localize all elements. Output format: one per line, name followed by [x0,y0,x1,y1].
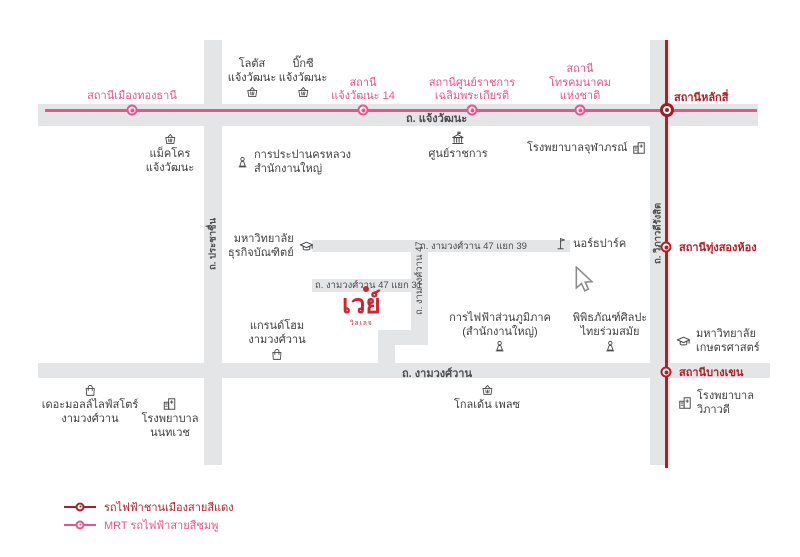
legend-label-red-line: รถไฟฟ้าชานเมืองสายสีแดง [104,498,234,516]
place-label-line: โรงพยาบาล [697,389,754,403]
place-chulabhorn-hospital: โรงพยาบาลจุฬาภรณ์ [527,141,646,155]
place-label-line: นนทเวช [142,426,199,440]
logo-dot [363,286,369,292]
station-label-line: สถานีเมืองทองธานี [87,90,177,103]
place-mwa: การประปานครหลวงสำนักงานใหญ่ [236,148,351,176]
legend-item-pink-line: MRT รถไฟฟ้าสายสีชมพู [64,518,234,531]
place-label: เดอะมอลล์ไลฟ์สโตร์งามวงศ์วาน [42,398,139,426]
place-makro: แม็คโครแจ้งวัฒนะ [146,133,194,175]
station-label-line: แห่งชาติ [549,90,611,103]
place-golden-place: โกลเด้น เพลซ [454,384,520,412]
hospital-icon [678,396,692,410]
station-label-line: สถานี [549,63,611,76]
road-ngamwongwan47-jog-v [378,344,395,365]
landmark-icon [493,340,506,353]
place-label-line: แจ้งวัฒนะ [146,161,194,175]
place-label-line: แกรนด์โฮม [248,319,305,333]
project-logo-text: เวย์ [342,289,381,319]
place-nonthavej-hospital: โรงพยาบาลนนทเวช [142,397,199,440]
place-label-line: สำนักงานใหญ่ [254,162,351,176]
place-label-line: เกษตรศาสตร์ [696,341,760,355]
place-kasetsart: มหาวิทยาลัยเกษตรศาสตร์ [676,327,760,355]
shopping-basket-icon [480,384,493,397]
station-label-telecom-national: สถานีโทรคมนาคมแห่งชาติ [549,63,611,103]
station-label-line: โทรคมนาคม [549,77,611,90]
road-label-ngamwongwan47-yaek39: ถ. งามวงศ์วาน 47 แยก 39 [420,241,527,252]
place-label: การไฟฟ้าส่วนภูมิภาค(สำนักงานใหญ่) [449,311,551,339]
shopping-basket-icon [163,133,176,146]
station-dot-muang-thong-thani [127,105,138,116]
station-dot-lak-si [660,103,674,117]
place-label: การประปานครหลวงสำนักงานใหญ่ [254,148,351,176]
legend-line-swatch-pink-line [64,524,96,526]
shopping-bag-icon [270,348,283,361]
road-label-prachachuen: ถ. ประชาชื่น [204,213,222,275]
place-label: มหาวิทยาลัยธุรกิจบัณฑิตย์ [228,232,294,260]
place-label-line: (สำนักงานใหญ่) [449,325,551,339]
station-dot-bang-khen [661,367,672,378]
flag-icon [554,237,568,251]
place-label-line: มหาวิทยาลัย [228,232,294,246]
legend-station-dot [76,502,85,511]
shopping-basket-icon [245,86,258,99]
station-label-line: แจ้งวัฒนะ 14 [331,90,395,103]
place-label-line: พิพิธภัณฑ์ศิลปะ [573,311,647,325]
place-label: โกลเด้น เพลซ [454,398,520,412]
legend-label-pink-line: MRT รถไฟฟ้าสายสีชมพู [104,516,218,534]
place-label-line: การไฟฟ้าส่วนภูมิภาค [449,311,551,325]
place-label-line: มหาวิทยาลัย [696,327,760,341]
place-label-line: แจ้งวัฒนะ [228,71,276,85]
place-the-mall: เดอะมอลล์ไลฟ์สโตร์งามวงศ์วาน [42,384,139,426]
station-dot-thung-song-hong [661,242,672,253]
landmark-icon [603,340,616,353]
place-label-line: เดอะมอลล์ไลฟ์สโตร์ [42,398,139,412]
road-ngamwongwan47-jog-h [378,330,428,345]
shopping-basket-icon [296,86,309,99]
station-label-government-complex: สถานีศูนย์ราชการเฉลิมพระเกียรติ [429,77,515,103]
place-label: โลตัสแจ้งวัฒนะ [228,57,276,85]
station-label-line: สถานี [331,77,395,90]
place-label: นอร์ธปาร์ค [573,237,626,251]
station-dot-chaengwattana-14 [358,105,369,116]
place-label-line: โกลเด้น เพลซ [454,398,520,412]
station-label-chaengwattana-14: สถานีแจ้งวัฒนะ 14 [331,77,395,103]
place-label-line: แม็คโคร [146,147,194,161]
place-label-line: งามวงศ์วาน [42,412,139,426]
place-moca: พิพิธภัณฑ์ศิลปะไทยร่วมสมัย [573,311,647,353]
place-label: แกรนด์โฮมงามวงศ์วาน [248,319,305,347]
station-dot-government-complex [467,105,478,116]
station-label-line: เฉลิมพระเกียรติ [429,90,515,103]
place-label-line: ศูนย์ราชการ [428,147,487,161]
station-label-line: สถานีศูนย์ราชการ [429,77,515,90]
legend-station-dot [76,520,85,529]
station-label-lak-si: สถานีหลักสี่ [674,88,728,106]
place-label-line: บิ๊กซี [279,57,327,71]
hospital-icon [632,141,646,155]
project-logo: เวย์ วิลเลจ [342,289,381,328]
place-bigc: บิ๊กซีแจ้งวัฒนะ [279,57,327,99]
place-label-line: โรงพยาบาลจุฬาภรณ์ [527,141,627,155]
station-label-bang-khen: สถานีบางเขน [679,363,743,381]
place-label-line: นอร์ธปาร์ค [573,237,626,251]
hospital-icon [163,397,177,411]
place-government-center: ศูนย์ราชการ [428,131,487,161]
station-label-thung-song-hong: สถานีทุ่งสองห้อง [679,238,757,256]
place-label-line: งามวงศ์วาน [248,333,305,347]
road-label-ngamwongwan: ถ. งามวงศ์วาน [402,364,472,382]
legend: รถไฟฟ้าชานเมืองสายสีแดงMRT รถไฟฟ้าสายสีช… [64,500,234,531]
place-label-line: การประปานครหลวง [254,148,351,162]
project-logo-subtext: วิลเลจ [342,318,381,328]
place-label-line: โลตัส [228,57,276,71]
mouse-cursor-icon [573,266,597,293]
place-label: ศูนย์ราชการ [428,147,487,161]
station-label-muang-thong-thani: สถานีเมืองทองธานี [87,90,177,103]
place-label: โรงพยาบาลจุฬาภรณ์ [527,141,627,155]
place-label-line: ไทยร่วมสมัย [573,325,647,339]
place-label: พิพิธภัณฑ์ศิลปะไทยร่วมสมัย [573,311,647,339]
place-label: โรงพยาบาลนนทเวช [142,412,199,440]
road-label-ngamwongwan47: ถ. งามวงศ์วาน 47 [411,247,428,309]
legend-item-red-line: รถไฟฟ้าชานเมืองสายสีแดง [64,500,234,513]
place-lotus: โลตัสแจ้งวัฒนะ [228,57,276,99]
legend-line-swatch-red-line [64,506,96,508]
government-building-icon [451,131,466,146]
place-dpu: มหาวิทยาลัยธุรกิจบัณฑิตย์ [228,232,314,260]
graduation-cap-icon [676,334,691,349]
place-pea: การไฟฟ้าส่วนภูมิภาค(สำนักงานใหญ่) [449,311,551,353]
mrt-pink-line [45,109,757,112]
place-label: บิ๊กซีแจ้งวัฒนะ [279,57,327,85]
place-label-line: วิภาวดี [697,403,754,417]
place-label: โรงพยาบาลวิภาวดี [697,389,754,417]
place-label-line: ธุรกิจบัณฑิตย์ [228,246,294,260]
place-label: แม็คโครแจ้งวัฒนะ [146,147,194,175]
place-vibhavadi-hospital: โรงพยาบาลวิภาวดี [678,389,754,417]
location-map: ถ. แจ้งวัฒนะ ถ. งามวงศ์วาน ถ. งามวงศ์วาน… [0,0,800,557]
place-grand-home: แกรนด์โฮมงามวงศ์วาน [248,319,305,361]
station-dot-telecom-national [575,105,586,116]
landmark-icon [236,156,249,169]
graduation-cap-icon [299,239,314,254]
place-north-park: นอร์ธปาร์ค [554,237,626,251]
place-label-line: โรงพยาบาล [142,412,199,426]
place-label-line: แจ้งวัฒนะ [279,71,327,85]
shopping-bag-icon [84,384,97,397]
place-label: มหาวิทยาลัยเกษตรศาสตร์ [696,327,760,355]
